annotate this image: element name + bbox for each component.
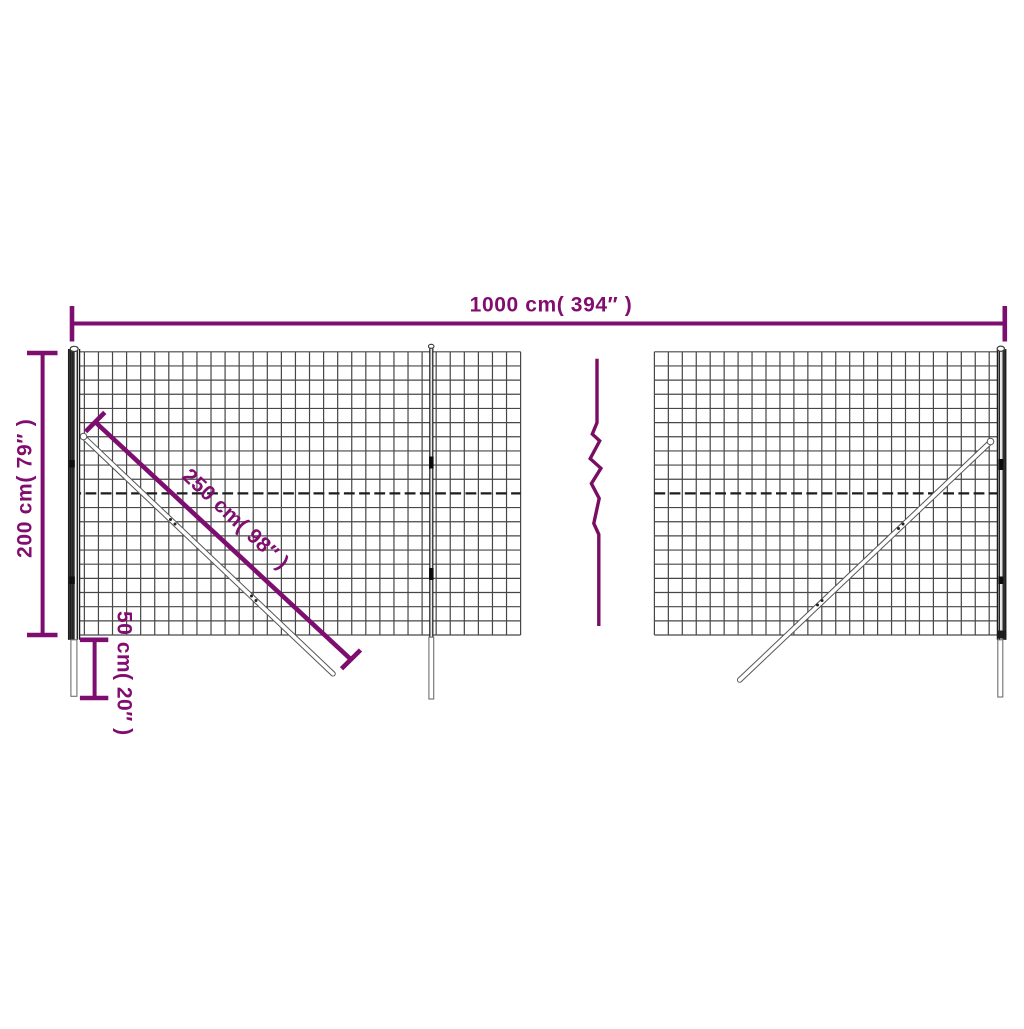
svg-text:50 cm( 20″ ): 50 cm( 20″ ) bbox=[112, 611, 135, 736]
svg-text:200 cm( 79″ ): 200 cm( 79″ ) bbox=[14, 419, 37, 558]
svg-text:1000 cm( 394″ ): 1000 cm( 394″ ) bbox=[470, 294, 633, 317]
